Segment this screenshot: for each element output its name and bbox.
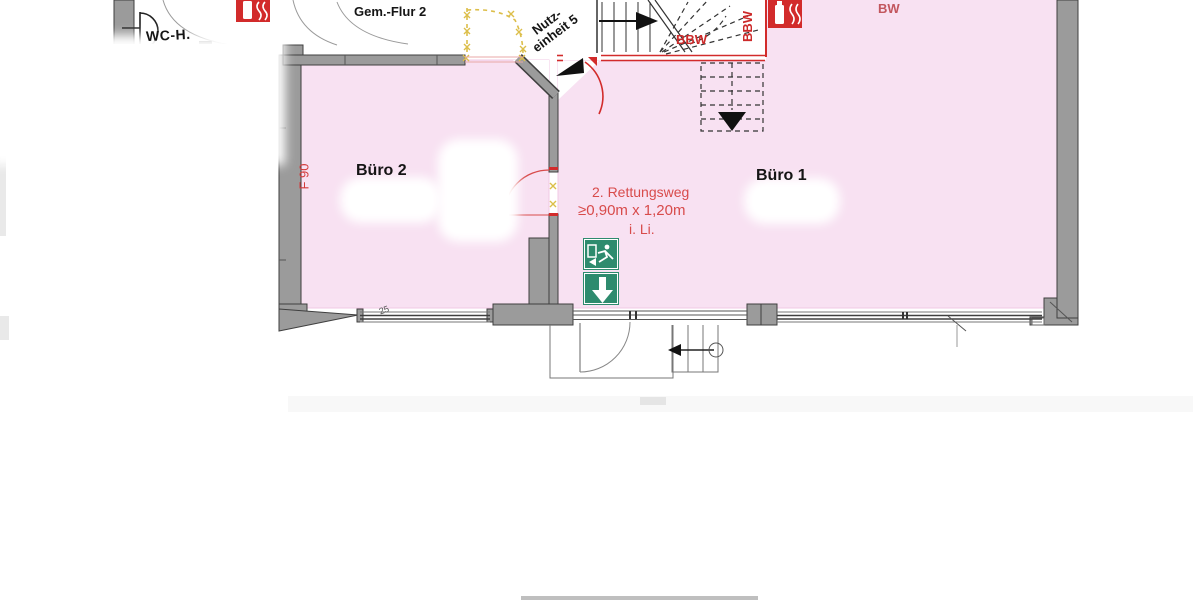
entrance-door-swing xyxy=(580,322,630,372)
redaction-patch-buero2-a xyxy=(349,186,433,214)
label-rettungsweg-line2: ≥0,90m x 1,20m xyxy=(578,202,685,219)
bottom-cut-line xyxy=(521,596,758,600)
label-gem-flur-2: Gem.-Flur 2 xyxy=(354,4,426,19)
room-buero-2-area xyxy=(301,60,549,308)
redaction-patch-buero1 xyxy=(753,187,831,215)
wall-middle-pier xyxy=(529,238,549,308)
wall-wc xyxy=(114,0,134,46)
label-bw: BW xyxy=(878,1,900,16)
window-buero1 xyxy=(777,312,1042,347)
label-rettungsweg-line1: 2. Rettungsweg xyxy=(592,184,689,200)
label-bbw-horizontal: BBW xyxy=(676,32,707,47)
entrance-porch xyxy=(550,322,723,378)
label-wc-h: WC-H. xyxy=(146,26,191,44)
door-closer-icon xyxy=(668,343,723,357)
label-f-90: F 90 xyxy=(297,146,312,190)
wall-top-buero2 xyxy=(283,55,465,65)
floor-plan-canvas: Gem.-Flur 2 WC-H. Nutz- einheit 5 BBW BB… xyxy=(0,0,1200,600)
wall-window2-left-pier xyxy=(761,304,777,325)
wall-entrance-right-pier xyxy=(747,304,761,325)
wall-bottom-center-pier xyxy=(493,304,573,325)
scan-band xyxy=(288,396,1193,412)
label-rettungsweg-line3: i. Li. xyxy=(629,221,655,237)
label-buero-1: Büro 1 xyxy=(756,167,807,185)
exit-sign-running-man-icon xyxy=(583,238,619,270)
edge-smudge-2 xyxy=(0,316,9,340)
scan-mark xyxy=(640,397,666,405)
wall-middle-upper xyxy=(549,92,558,172)
wall-left-notch xyxy=(283,45,303,56)
label-buero-2: Büro 2 xyxy=(356,162,407,180)
fire-extinguisher-icon-stair xyxy=(768,0,802,28)
exit-sign-down-arrow-icon xyxy=(583,272,619,305)
label-bbw-vertical: BBW xyxy=(740,11,755,42)
wall-break-wedge xyxy=(279,309,358,331)
entrance-threshold xyxy=(573,311,747,320)
wall-right xyxy=(1057,0,1078,318)
redaction-patch-buero2-b xyxy=(447,148,509,233)
redaction-patch-left xyxy=(0,44,276,156)
edge-smudge-1 xyxy=(0,148,6,236)
wall-middle-lower xyxy=(549,214,558,308)
fire-extinguisher-icon-left xyxy=(236,0,270,22)
